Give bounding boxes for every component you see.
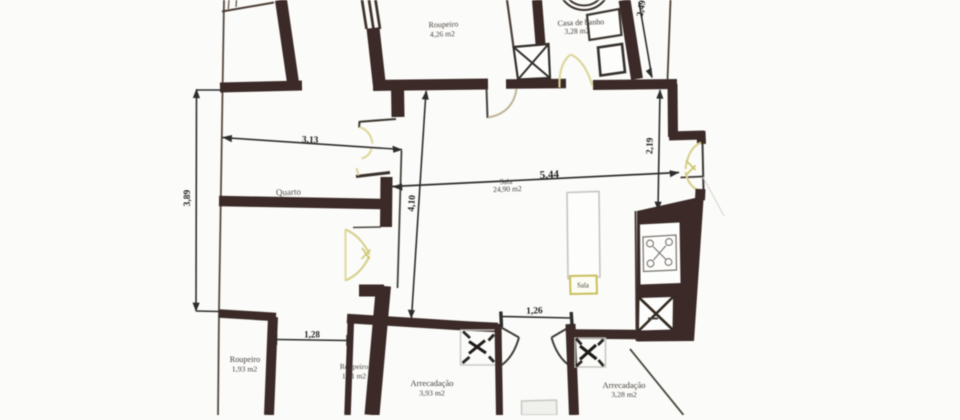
svg-text:1,26: 1,26 <box>526 306 543 317</box>
svg-text:3,28 m2: 3,28 m2 <box>564 26 589 36</box>
svg-text:Roupeiro: Roupeiro <box>340 362 368 371</box>
svg-text:Sala: Sala <box>577 283 589 290</box>
svg-text:1,93 m2: 1,93 m2 <box>232 365 258 374</box>
svg-text:Arrecadação: Arrecadação <box>411 378 454 388</box>
svg-text:4,26 m2: 4,26 m2 <box>430 29 455 39</box>
svg-text:3,93 m2: 3,93 m2 <box>419 389 445 398</box>
svg-text:Roupeiro: Roupeiro <box>230 355 260 364</box>
svg-text:Quarto: Quarto <box>276 187 302 198</box>
svg-text:24,90 m2: 24,90 m2 <box>493 184 522 194</box>
svg-text:3,13: 3,13 <box>302 135 319 146</box>
svg-text:3,89: 3,89 <box>183 189 193 206</box>
svg-text:2,19: 2,19 <box>645 137 656 154</box>
svg-text:5,44: 5,44 <box>539 168 559 181</box>
svg-text:Roupeiro: Roupeiro <box>428 19 458 29</box>
svg-text:Arrecadação: Arrecadação <box>603 380 646 390</box>
svg-text:4,10: 4,10 <box>407 194 418 212</box>
svg-text:3,28 m2: 3,28 m2 <box>611 390 637 399</box>
svg-text:1,28: 1,28 <box>304 330 320 340</box>
